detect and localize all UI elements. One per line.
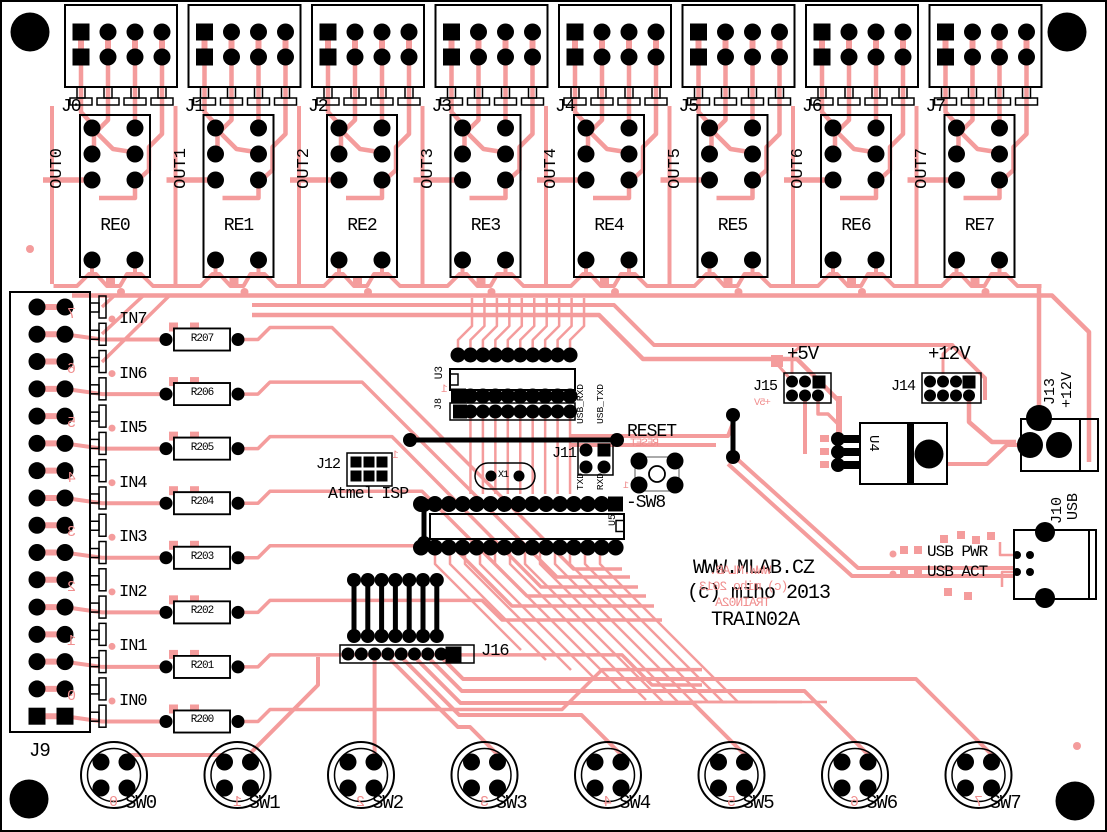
pcb-board-train02a: J0OUT0RE0J1OUT1RE1J2OUT2RE2J3OUT3RE3J4OU…: [0, 0, 1107, 832]
label-usb: USB: [1066, 493, 1081, 520]
label-board-name: TRAIN02A: [711, 611, 799, 631]
label-output-out5: OUT5: [667, 148, 684, 189]
mirror-copyright: (c) miho 2013: [700, 580, 788, 593]
label-x1: X1: [498, 471, 508, 481]
label-sw4: SW4: [619, 794, 650, 813]
label-sw3: SW3: [496, 794, 527, 813]
label-5v: +5V: [787, 345, 818, 364]
label-txd: TXD: [576, 473, 586, 490]
label-sw7: SW7: [990, 794, 1021, 813]
label-output-out2: OUT2: [296, 148, 313, 189]
mirror-pin1-sw8: 1: [624, 482, 629, 492]
label-connector-j1: J1: [185, 98, 205, 116]
label-usb-txd: USB_TXD: [596, 384, 606, 424]
label-in6: IN6: [119, 366, 147, 383]
mirror-reset: RESET: [631, 439, 659, 450]
label-relay-re2: RE2: [327, 217, 397, 235]
label-relay-re3: RE3: [451, 217, 521, 235]
label-in5: IN5: [119, 420, 147, 437]
mirror-digit-j9-0: 0: [68, 689, 76, 704]
label-sw5: SW5: [743, 794, 774, 813]
pcb-graphics: [2, 2, 1107, 832]
mirror-digit-sw4: 4: [604, 795, 612, 810]
label-relay-re0: RE0: [80, 217, 150, 235]
mirror-digit-sw7: 7: [975, 795, 983, 810]
label-relay-re7: RE7: [945, 217, 1015, 235]
label-relay-re4: RE4: [574, 217, 644, 235]
mirror-digit-j9-4: 4: [68, 471, 76, 486]
label-rxd: RXD: [596, 473, 606, 490]
mirror-digit-j9-5: 5: [68, 416, 76, 431]
mirror-digit-j9-3: 3: [68, 525, 76, 540]
label-connector-j3: J3: [432, 98, 452, 116]
mirror-digit-j9-1: 1: [68, 634, 76, 649]
label-j16: J16: [481, 643, 509, 660]
label-connector-j0: J0: [61, 98, 81, 116]
label-12v: +12V: [928, 345, 970, 364]
label-r200: R200: [174, 715, 230, 726]
label-in3: IN3: [119, 529, 147, 546]
mirror-site: WWW.MLAB.: [710, 564, 771, 577]
label-r205: R205: [174, 443, 230, 454]
label-in7: IN7: [119, 311, 147, 328]
mirror-digit-j9-6: 6: [68, 362, 76, 377]
label-j9: J9: [29, 742, 50, 761]
label-connector-j5: J5: [679, 98, 699, 116]
label-j14: J14: [891, 379, 915, 394]
mirror-digit-j9-7: 7: [68, 307, 76, 322]
label-relay-re1: RE1: [204, 217, 274, 235]
mirror-5v: +5V: [755, 398, 771, 409]
label-output-out6: OUT6: [790, 148, 807, 189]
label-connector-j6: J6: [802, 98, 822, 116]
label-sw2: SW2: [372, 794, 403, 813]
label-j12: J12: [316, 457, 340, 472]
mirror-digit-sw3: 3: [481, 795, 489, 810]
label-in1: IN1: [119, 638, 147, 655]
label-output-out3: OUT3: [420, 148, 437, 189]
label-usb-pwr: USB PWR: [927, 544, 987, 560]
mirror-pin1-j12: 1: [393, 451, 399, 462]
label-r201: R201: [174, 661, 230, 672]
label-sw1: SW1: [249, 794, 280, 813]
mirror-digit-sw2: 2: [357, 795, 365, 810]
label-in4: IN4: [119, 475, 147, 492]
label-j13-voltage: +12V: [1060, 372, 1075, 408]
label-j10: J10: [1050, 497, 1065, 524]
label-r206: R206: [174, 388, 230, 399]
label-in0: IN0: [119, 693, 147, 710]
label-r204: R204: [174, 497, 230, 508]
label-u4: U4: [866, 435, 880, 452]
label-atmel-isp: Atmel ISP: [328, 486, 408, 503]
mirror-digit-j9-2: 2: [68, 580, 76, 595]
label-r207: R207: [174, 334, 230, 345]
label-j13: J13: [1043, 378, 1058, 405]
label-usb-act: USB ACT: [927, 564, 987, 580]
label-j11: J11: [552, 446, 576, 461]
label-output-out0: OUT0: [49, 148, 66, 189]
label-output-out1: OUT1: [173, 148, 190, 189]
label-r202: R202: [174, 606, 230, 617]
label-j15: J15: [753, 379, 777, 394]
label-relay-re6: RE6: [821, 217, 891, 235]
label-output-out4: OUT4: [543, 148, 560, 189]
label-u3: U3: [435, 366, 446, 379]
label-j8: J8: [435, 398, 445, 410]
mirror-board-name: TRAIN02A: [716, 596, 770, 609]
label-in2: IN2: [119, 584, 147, 601]
label-output-out7: OUT7: [914, 148, 931, 189]
label-relay-re5: RE5: [698, 217, 768, 235]
label-sw6: SW6: [866, 794, 897, 813]
label-r203: R203: [174, 552, 230, 563]
mirror-pin1-u3: 1: [442, 385, 448, 396]
mirror-digit-sw5: 5: [728, 795, 736, 810]
label-connector-j4: J4: [555, 98, 575, 116]
label-u5: U5: [609, 514, 619, 526]
label-usb-rxd: USB_RXD: [576, 384, 586, 424]
label-sw0: SW0: [125, 794, 156, 813]
label-sw8: -SW8: [626, 494, 665, 512]
label-connector-j7: J7: [926, 98, 946, 116]
label-connector-j2: J2: [308, 98, 328, 116]
mirror-digit-sw0: 0: [110, 795, 118, 810]
mirror-digit-sw1: 1: [234, 795, 242, 810]
mirror-digit-sw6: 6: [851, 795, 859, 810]
